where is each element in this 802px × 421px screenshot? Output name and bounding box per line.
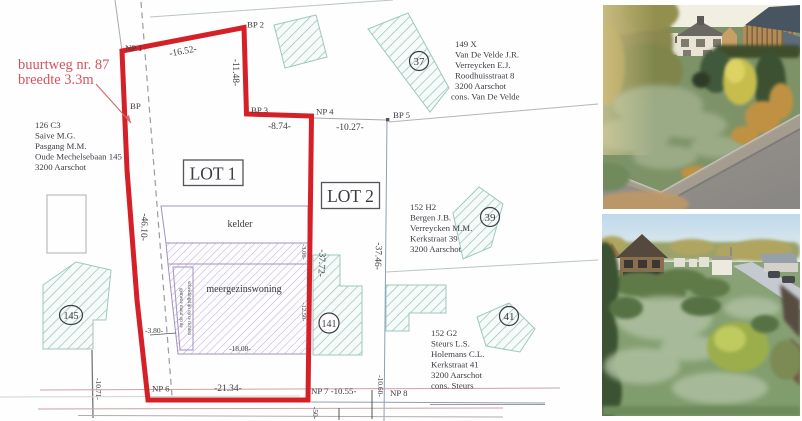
- svg-text:3200 Aarschot: 3200 Aarschot: [410, 244, 462, 254]
- svg-text:NP 1: NP 1: [125, 43, 143, 53]
- svg-text:Verreycken M.M.: Verreycken M.M.: [410, 223, 472, 233]
- svg-text:Kerkstraat 41: Kerkstraat 41: [431, 360, 479, 370]
- svg-text:-12.50-: -12.50-: [300, 303, 307, 322]
- svg-text:LOT 2: LOT 2: [327, 186, 374, 206]
- svg-text:-3.00-: -3.00-: [300, 244, 307, 260]
- svg-text:cons. Steurs: cons. Steurs: [431, 381, 474, 391]
- svg-text:BP 3: BP 3: [251, 105, 269, 115]
- svg-text:-10.71-: -10.71-: [94, 378, 103, 400]
- svg-text:-16.52-: -16.52-: [169, 45, 198, 60]
- svg-text:Saive M.G.: Saive M.G.: [35, 131, 75, 141]
- svg-text:-21.34-: -21.34-: [214, 384, 242, 394]
- svg-text:39: 39: [485, 212, 497, 224]
- svg-text:-18.08-: -18.08-: [229, 344, 251, 353]
- svg-text:3200 Aarschot: 3200 Aarschot: [455, 81, 507, 91]
- svg-text:152 H2: 152 H2: [410, 202, 436, 212]
- svg-text:-37.46-: -37.46-: [372, 242, 383, 270]
- svg-text:Bergen J.B.: Bergen J.B.: [410, 213, 451, 223]
- svg-text:141: 141: [322, 319, 337, 330]
- svg-text:buurtweg nr. 87: buurtweg nr. 87: [18, 57, 109, 73]
- svg-text:-10.60-: -10.60-: [376, 375, 385, 397]
- svg-text:NP 7 -10.55-: NP 7 -10.55-: [311, 386, 356, 396]
- svg-text:Verreycken E.J.: Verreycken E.J.: [455, 60, 510, 70]
- svg-text:BP 2: BP 2: [247, 20, 264, 30]
- svg-text:Oude Mechelsebaan 145: Oude Mechelsebaan 145: [35, 152, 123, 162]
- svg-text:3200 Aarschot: 3200 Aarschot: [35, 162, 87, 172]
- svg-text:-11.48-: -11.48-: [230, 59, 240, 86]
- svg-text:Roodhuisstraat 8: Roodhuisstraat 8: [455, 71, 515, 81]
- svg-text:-3.80-: -3.80-: [145, 326, 164, 335]
- svg-text:149 X: 149 X: [455, 39, 477, 49]
- svg-text:breedte 3.3m: breedte 3.3m: [18, 72, 94, 88]
- svg-text:meergezinswoning: meergezinswoning: [206, 284, 281, 295]
- svg-text:NP 8: NP 8: [390, 388, 408, 398]
- svg-text:-50-: -50-: [311, 407, 320, 420]
- svg-text:41: 41: [504, 311, 515, 323]
- svg-text:Holemans C.L.: Holemans C.L.: [431, 349, 485, 359]
- svg-text:LOT 1: LOT 1: [190, 164, 237, 184]
- svg-text:BP 5: BP 5: [393, 110, 411, 120]
- svg-text:37: 37: [414, 56, 426, 68]
- svg-text:Steurs L.S.: Steurs L.S.: [431, 339, 470, 349]
- svg-text:-37.72-: -37.72-: [315, 249, 326, 277]
- svg-text:152 G2: 152 G2: [431, 328, 457, 338]
- svg-text:kelder: kelder: [228, 219, 254, 230]
- svg-text:126 C3: 126 C3: [35, 120, 61, 130]
- svg-text:-10.27-: -10.27-: [336, 123, 364, 133]
- svg-text:scheidingslijn op te richten: scheidingslijn op te richten: [186, 281, 191, 336]
- svg-text:NP 4: NP 4: [316, 107, 334, 117]
- svg-text:BP: BP: [130, 101, 141, 111]
- svg-text:-46.10-: -46.10-: [138, 213, 149, 241]
- svg-text:cons. Van De Velde: cons. Van De Velde: [451, 92, 520, 102]
- svg-text:-8.74-: -8.74-: [268, 122, 291, 132]
- svg-text:Van De Velde J.R.: Van De Velde J.R.: [455, 50, 519, 60]
- svg-text:NP 6: NP 6: [152, 384, 170, 394]
- svg-text:Pasgang M.M.: Pasgang M.M.: [35, 141, 87, 151]
- svg-text:3200 Aarschot: 3200 Aarschot: [431, 370, 483, 380]
- svg-text:gemene muur op de: gemene muur op de: [178, 288, 183, 328]
- svg-text:Kerkstraat 39: Kerkstraat 39: [410, 234, 458, 244]
- svg-text:145: 145: [64, 311, 79, 322]
